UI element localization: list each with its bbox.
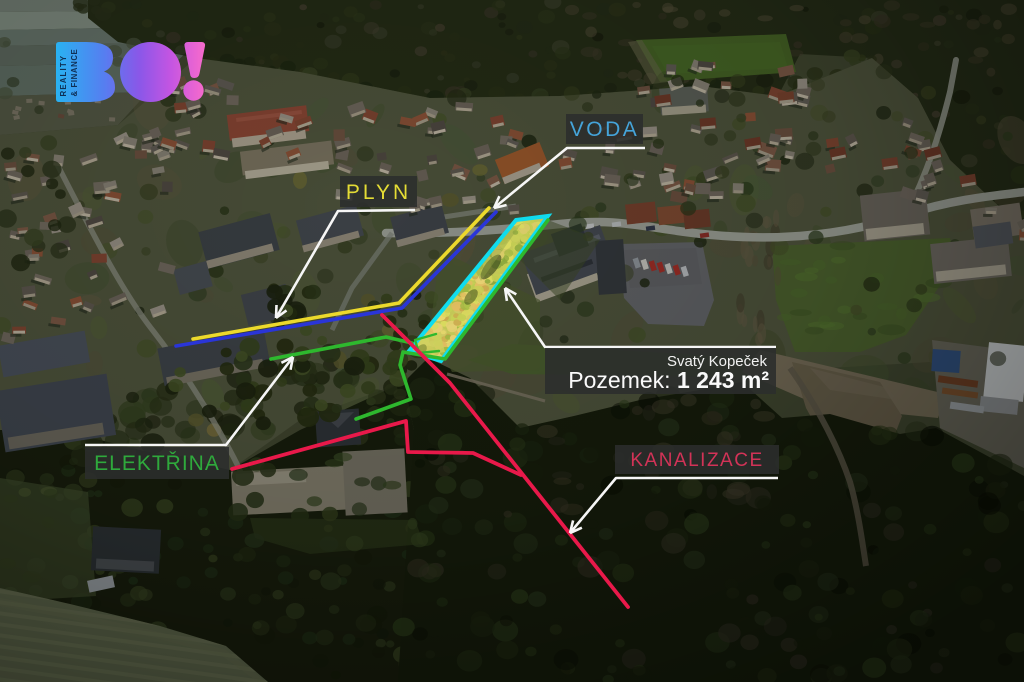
svg-text:Pozemek: 1 243 m²: Pozemek: 1 243 m²: [568, 367, 769, 393]
svg-text:ELEKTŘINA: ELEKTŘINA: [94, 452, 220, 475]
svg-text:VODA: VODA: [570, 118, 640, 141]
svg-text:& FINANCE: & FINANCE: [70, 49, 79, 97]
svg-text:KANALIZACE: KANALIZACE: [630, 450, 763, 471]
svg-text:REALITY: REALITY: [59, 55, 68, 97]
svg-text:PLYN: PLYN: [346, 181, 411, 204]
